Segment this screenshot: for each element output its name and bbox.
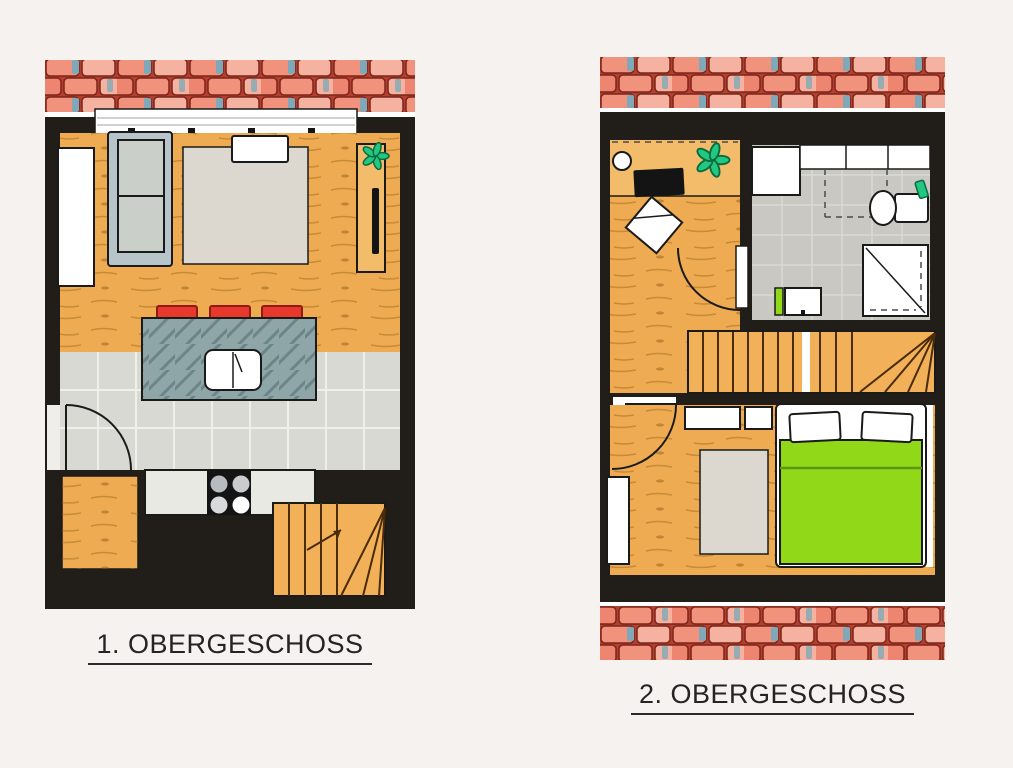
- bathroom-sink: [775, 288, 821, 316]
- floorplan-second-upper-floor: 2. OBERGESCHOSS: [600, 55, 945, 715]
- roof-tile-band-top: [600, 57, 945, 112]
- plan-1-caption: 1. OBERGESCHOSS: [45, 629, 415, 665]
- plan-2-caption-text: 2. OBERGESCHOSS: [631, 679, 914, 715]
- wardrobe: [607, 477, 629, 564]
- pillow: [789, 412, 840, 443]
- shower: [863, 245, 928, 316]
- pillow: [861, 412, 912, 443]
- area-rug: [183, 147, 308, 264]
- bathroom-counter: [800, 145, 930, 169]
- sofa: [108, 132, 172, 266]
- washing-machine: [752, 147, 800, 195]
- entry-landing: [62, 476, 138, 569]
- floorplan-canvas: 1. OBERGESCHOSS: [0, 0, 1013, 768]
- floorplan-first-upper-floor: 1. OBERGESCHOSS: [45, 58, 415, 665]
- staircase: [688, 331, 935, 393]
- island-sink: [205, 350, 261, 390]
- laptop: [633, 168, 684, 198]
- kitchen-island: [142, 318, 316, 400]
- plan-2-caption: 2. OBERGESCHOSS: [600, 679, 945, 715]
- bath-mat: [775, 288, 783, 315]
- hallway: [610, 330, 688, 393]
- bedroom: [607, 397, 935, 575]
- office-room: [610, 140, 748, 330]
- bedroom-rug: [700, 450, 768, 554]
- bedside-table: [685, 407, 740, 429]
- plan-2-drawing: [600, 55, 945, 660]
- desk-lamp: [613, 152, 631, 170]
- plan-1-drawing: [45, 58, 415, 610]
- plan-1-caption-text: 1. OBERGESCHOSS: [88, 629, 371, 665]
- cooktop: [207, 470, 251, 515]
- double-bed: [776, 404, 926, 567]
- bedside-table: [745, 407, 772, 429]
- wardrobe: [58, 148, 94, 286]
- mattress: [780, 440, 922, 564]
- bathroom: [752, 145, 930, 320]
- roof-tile-band-bottom: [600, 602, 945, 660]
- winder-staircase: [273, 503, 385, 596]
- tv: [372, 188, 379, 254]
- coffee-table: [232, 136, 288, 162]
